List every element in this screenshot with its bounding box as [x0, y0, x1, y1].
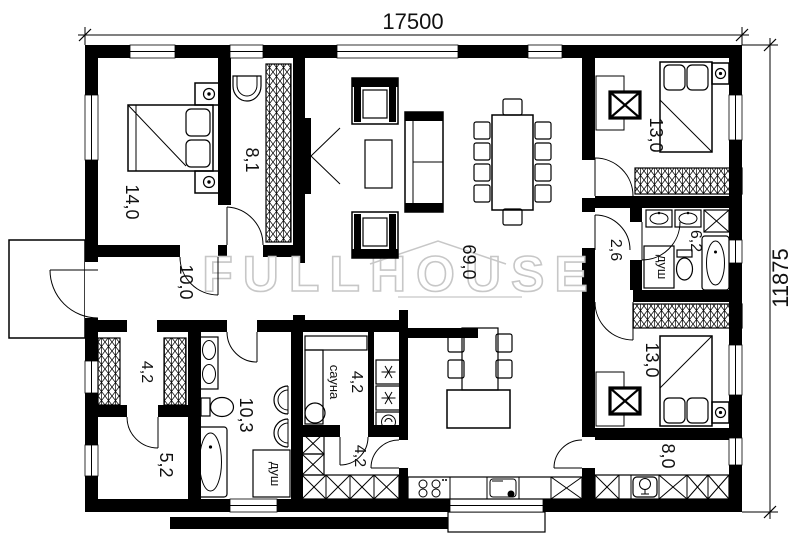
- window: [85, 445, 98, 476]
- washing-machine: [704, 210, 729, 232]
- double-bed: [128, 105, 213, 171]
- wardrobe-unit: [635, 168, 742, 194]
- wardrobe-room: 4,2: [98, 338, 186, 405]
- single-bed: [660, 336, 712, 426]
- entrance-porch: [9, 240, 85, 338]
- door-storage: [127, 417, 158, 448]
- wardrobe-unit: [266, 64, 291, 242]
- shower-stall: душ: [644, 246, 674, 288]
- room-area: 10,0: [176, 264, 196, 299]
- closet-room: 8,1: [233, 64, 291, 242]
- door-step: [448, 512, 545, 532]
- fridge-column: [376, 360, 401, 432]
- bedroom-left: 14,0: [122, 83, 223, 220]
- room-area: 10,3: [236, 397, 256, 432]
- cabinet-x: [302, 454, 324, 475]
- room-area: 8,1: [242, 147, 262, 172]
- window: [337, 45, 458, 58]
- room-area: 4,2: [351, 445, 368, 467]
- wardrobe-unit: [633, 304, 742, 328]
- door-closet: [227, 207, 263, 245]
- dimension-top-value: 17500: [382, 9, 443, 34]
- bedroom-bottom-right: 13,0: [596, 304, 742, 426]
- kitchen-counter: [408, 477, 582, 499]
- cabinet-x: [551, 477, 582, 499]
- bedroom-top-right: 13,0: [596, 62, 742, 194]
- window: [230, 45, 263, 58]
- door-bedroom-top-right: [595, 158, 633, 196]
- basin-sink: [633, 477, 657, 497]
- sink: [675, 210, 701, 227]
- freezer-icon: [382, 366, 396, 378]
- room-area: 4,2: [348, 371, 365, 393]
- kitchen-island: [447, 390, 510, 428]
- window: [729, 345, 742, 395]
- towel-radiator: [274, 386, 288, 414]
- door-bathroom-main: [227, 332, 257, 362]
- chair-x: [610, 92, 640, 118]
- freezer-icon: [382, 392, 396, 404]
- room-area: 4,2: [138, 361, 155, 383]
- terrace-edge: [170, 517, 448, 529]
- window: [230, 499, 277, 512]
- window: [729, 438, 742, 465]
- bathroom-small: душ 6,2: [644, 210, 729, 290]
- shower-label: душ: [268, 462, 283, 487]
- room-area: 13,0: [646, 117, 666, 152]
- single-bed: [660, 62, 712, 152]
- cabinet-row: [302, 475, 399, 499]
- window: [729, 95, 742, 140]
- wardrobe-unit: [98, 338, 120, 405]
- sofa: [405, 112, 443, 212]
- washbasin: [233, 76, 261, 101]
- watermark: FULLHOUSE: [202, 241, 598, 302]
- room-area: 8,0: [658, 443, 678, 468]
- window: [85, 95, 98, 160]
- tv-unit: [305, 118, 340, 194]
- window: [130, 45, 175, 58]
- sauna-room: сауна 4,2: [305, 336, 367, 424]
- dining-table-set: [474, 99, 551, 225]
- armchair: [352, 78, 398, 124]
- kitchen-sink: [490, 479, 516, 498]
- floor-plan-page: 17500 11875: [0, 0, 800, 537]
- room-area: 5,2: [156, 452, 176, 477]
- window: [528, 45, 562, 58]
- sauna-stove: [305, 403, 325, 423]
- window: [450, 499, 543, 512]
- door-bedroom-bottom-right: [595, 302, 633, 340]
- room-area: 69,0: [459, 244, 479, 279]
- towel-radiator: [274, 419, 288, 447]
- room-name: сауна: [327, 365, 342, 400]
- nightstand: [712, 63, 729, 84]
- bathroom-main: душ 10,3: [194, 337, 290, 497]
- toilet: [677, 250, 693, 280]
- chair-x: [610, 388, 640, 414]
- room-area: 2,6: [607, 239, 624, 261]
- armchair: [352, 212, 398, 258]
- dimension-right: 11875: [742, 38, 793, 519]
- stove: [419, 479, 447, 497]
- shower-label: душ: [655, 255, 670, 280]
- nightstand: [712, 402, 729, 423]
- cabinet-row: [595, 475, 729, 499]
- pantry-room: 4,2: [302, 433, 399, 499]
- window: [729, 240, 742, 263]
- door-pantry: [371, 440, 399, 468]
- room-area: 13,0: [642, 342, 662, 377]
- coffee-table: [365, 140, 392, 188]
- floor-plan-drawing: 17500 11875: [0, 0, 800, 537]
- wardrobe-unit: [164, 338, 186, 405]
- sink: [646, 210, 672, 227]
- shower-stall: душ: [253, 450, 290, 497]
- dimension-top: 17500: [78, 9, 749, 45]
- window: [85, 361, 98, 393]
- door-hall-bottom: [554, 440, 582, 468]
- room-area: 14,0: [122, 184, 142, 219]
- hall-bottom: 8,0: [595, 443, 729, 499]
- room-area: 6,2: [687, 230, 704, 252]
- bathtub: [702, 236, 729, 290]
- double-sink: [200, 337, 218, 389]
- dimension-right-value: 11875: [768, 248, 793, 308]
- toilet: [201, 398, 234, 417]
